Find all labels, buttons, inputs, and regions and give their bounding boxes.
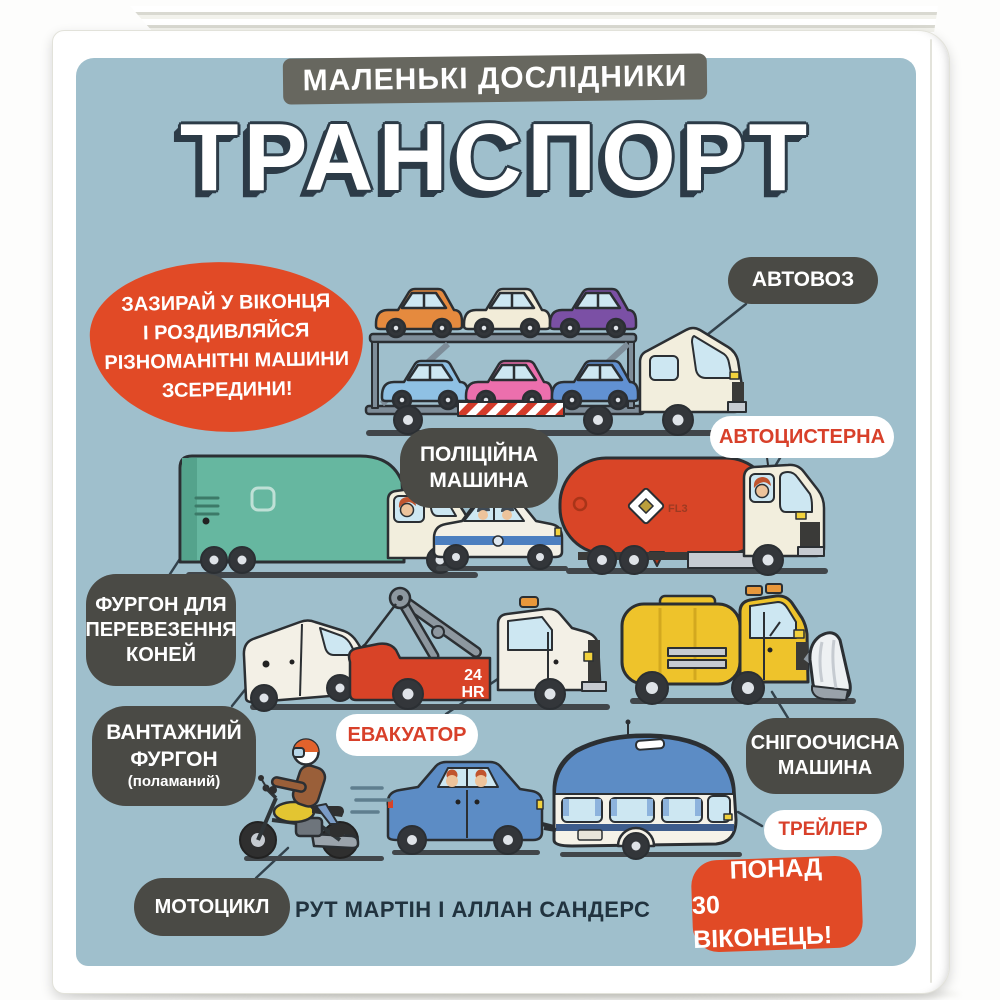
hazard-stripe-board <box>458 402 564 416</box>
authors: РУТ МАРТІН І АЛЛАН САНДЕРС <box>295 897 645 923</box>
windows-count-badge: ПОНАД 30 ВІКОНЕЦЬ! <box>690 855 863 953</box>
label-snow-plow: СНІГООЧИСНА МАШИНА <box>746 718 904 794</box>
tanker-truck-illustration: FL3 <box>560 450 828 575</box>
label-police-car: ПОЛІЦІЙНА МАШИНА <box>400 428 558 508</box>
label-cargo-van: ВАНТАЖНИЙ ФУРГОН (поламаний) <box>92 706 256 806</box>
car-transporter-illustration <box>366 289 748 436</box>
tagline-line: І РОЗДИВЛЯЙСЯ <box>143 317 310 349</box>
speed-lines <box>352 788 390 812</box>
tow-24hr-sign-line1: 24 <box>464 667 482 684</box>
motorcycle-illustration <box>240 740 390 862</box>
tow-24hr-sign-line2: HR <box>461 684 485 701</box>
tagline-line: РІЗНОМАНІТНІ МАШИНИ <box>104 345 349 378</box>
series-title: МАЛЕНЬКІ ДОСЛІДНИКИ <box>302 60 687 99</box>
snow-plow-illustration <box>622 584 856 704</box>
label-cargo-van-note: (поламаний) <box>128 773 220 792</box>
caravan-trailer-illustration <box>544 720 742 860</box>
book-title: ТРАНСПОРТ <box>76 110 916 206</box>
loaded-cars <box>376 289 638 409</box>
label-motorcycle: МОТОЦИКЛ <box>134 878 290 936</box>
tanker-placard-code: FL3 <box>668 503 688 515</box>
series-banner: МАЛЕНЬКІ ДОСЛІДНИКИ <box>283 53 708 104</box>
blue-car-illustration <box>388 762 558 855</box>
label-trailer: ТРЕЙЛЕР <box>764 810 882 850</box>
label-car-transporter: АВТОВОЗ <box>728 257 878 304</box>
label-horse-van: ФУРГОН ДЛЯ ПЕРЕВЕЗЕННЯ КОНЕЙ <box>86 574 236 686</box>
tagline-line: ЗАЗИРАЙ У ВІКОНЦЯ <box>121 287 331 320</box>
label-tow-truck: ЕВАКУАТОР <box>336 714 478 756</box>
book-cover-photo: FL3 <box>0 0 1000 1000</box>
tagline-line: ЗСЕРЕДИНИ! <box>162 375 293 406</box>
label-tanker: АВТОЦИСТЕРНА <box>710 416 894 458</box>
leader-snow-plow <box>772 692 788 718</box>
tow-truck-illustration: 24 HR <box>244 588 610 711</box>
leader-trailer <box>738 812 762 826</box>
